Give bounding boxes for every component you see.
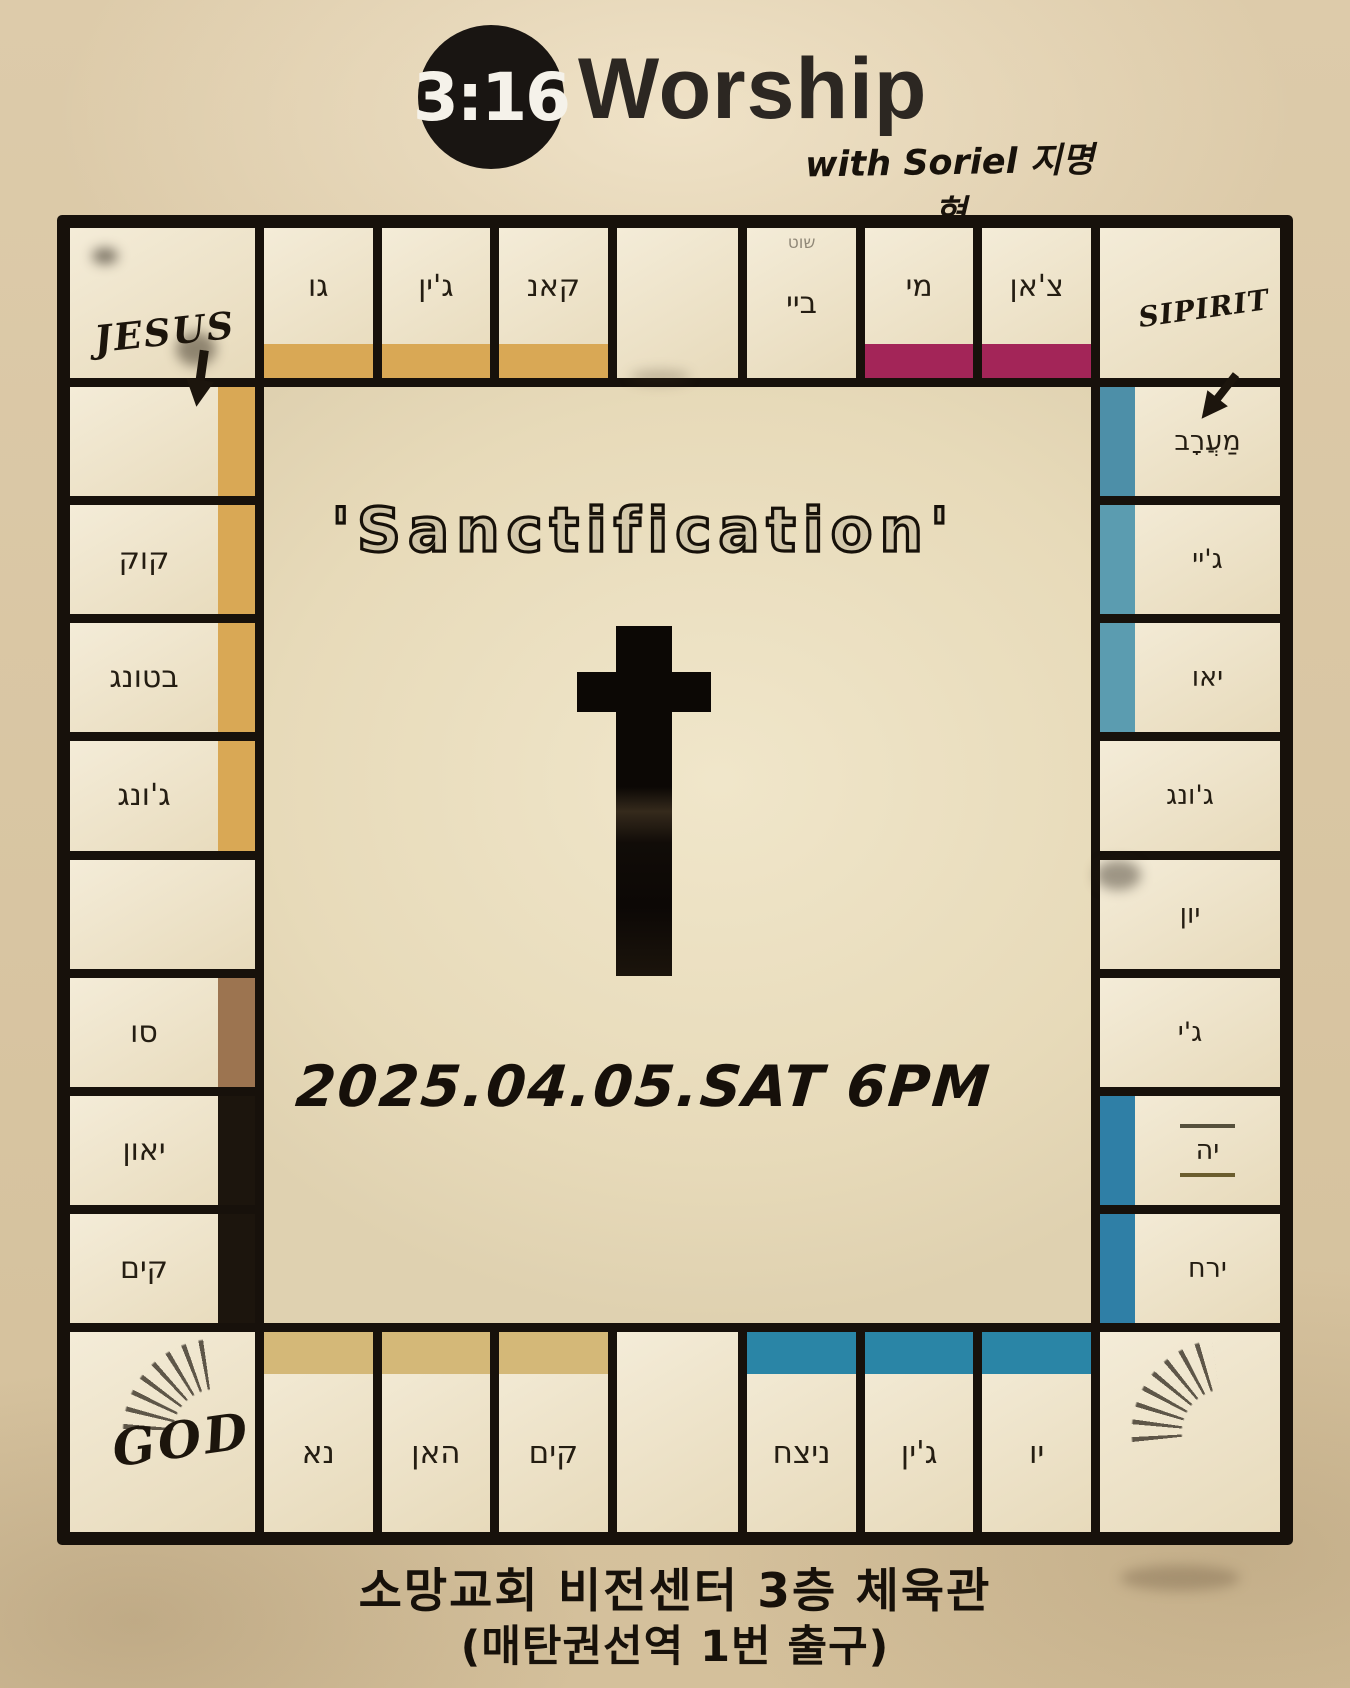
- square-label-area: [617, 1332, 739, 1532]
- square-label: יאו: [1192, 662, 1223, 693]
- color-bar: [747, 1332, 856, 1374]
- square-label: ירח: [1188, 1253, 1227, 1284]
- color-bar: [218, 1214, 255, 1323]
- board-side-bottom: נאהאןקיםניצחג'יןיו: [264, 1332, 1091, 1532]
- square-label: סו: [130, 1015, 158, 1050]
- board-side-top: גוג'יןקאנשוטביימיצ'אן: [264, 228, 1091, 378]
- center-content: 'Sanctification' 2025.04.05.SAT 6PM: [296, 387, 991, 1120]
- board-square: האן: [382, 1332, 491, 1532]
- corner-bottom-right: [1100, 1332, 1280, 1532]
- color-bar: [1100, 623, 1135, 732]
- logo-badge-text: 3:16: [413, 59, 569, 136]
- color-bar: [1100, 1214, 1135, 1323]
- board-square: גו: [264, 228, 373, 378]
- board-square: יון: [1100, 860, 1280, 969]
- color-bar: [1100, 1096, 1135, 1205]
- square-label-area: ג'ונג: [1100, 741, 1280, 850]
- color-bar: [264, 1332, 373, 1374]
- square-label: בטונג: [109, 660, 178, 695]
- color-bar: [218, 505, 255, 614]
- square-label: קאנ: [527, 269, 580, 304]
- board-square: קוק: [70, 505, 255, 614]
- down-arrow-icon: [175, 347, 225, 414]
- square-label: מי: [906, 269, 933, 304]
- directions-line: (매탄권선역 1번 출구): [0, 1612, 1350, 1674]
- corner-label: SIPIRIT: [1137, 283, 1272, 334]
- corner-sipirit: SIPIRIT: [1100, 228, 1280, 378]
- square-label: נא: [302, 1435, 335, 1471]
- square-label-area: [70, 860, 255, 969]
- board-square: ג'ין: [382, 228, 491, 378]
- color-bar: [1100, 505, 1135, 614]
- board-square: יאון: [70, 1096, 255, 1205]
- square-label-area: שוטביי: [747, 228, 856, 378]
- logo-badge: 3:16: [418, 25, 564, 169]
- board-square: ג'י: [1100, 978, 1280, 1087]
- square-label-area: קים: [499, 1374, 608, 1532]
- square-label-area: ניצח: [747, 1374, 856, 1532]
- square-label: האן: [411, 1435, 460, 1471]
- square-label: קים: [529, 1435, 579, 1471]
- board-square: יה: [1100, 1096, 1280, 1205]
- square-label-area: ג'י: [1100, 978, 1280, 1087]
- square-label: גו: [308, 269, 329, 304]
- square-label-area: יה: [1135, 1096, 1280, 1205]
- board-square: ג'ין: [865, 1332, 974, 1532]
- square-label: יה: [1180, 1124, 1236, 1177]
- corner-label: GOD: [109, 1401, 254, 1479]
- square-label: ג'י: [1178, 1017, 1203, 1048]
- square-label-area: נא: [264, 1374, 373, 1532]
- square-label: יאון: [122, 1133, 165, 1168]
- square-label: יו: [1029, 1435, 1044, 1471]
- color-bar: [218, 623, 255, 732]
- color-bar: [218, 387, 255, 496]
- board-bottom-row: GOD נאהאןקיםניצחג'יןיו: [70, 1332, 1280, 1532]
- board-square: [617, 228, 739, 378]
- square-label: קוק: [119, 542, 170, 577]
- board-square: [70, 387, 255, 496]
- corner-jesus: JESUS: [70, 228, 255, 378]
- board-square: ג'יי: [1100, 505, 1280, 614]
- board-square: ג'ונג: [70, 741, 255, 850]
- fan-decoration: [1107, 1329, 1224, 1446]
- board-square: מי: [865, 228, 974, 378]
- square-label-area: ג'ונג: [70, 741, 218, 850]
- color-bar: [1100, 387, 1135, 496]
- color-bar: [382, 344, 491, 378]
- board-square: יו: [982, 1332, 1091, 1532]
- square-label-area: סו: [70, 978, 218, 1087]
- square-label-area: מי: [865, 228, 974, 344]
- square-label-area: ג'ין: [865, 1374, 974, 1532]
- color-bar: [865, 1332, 974, 1374]
- color-bar: [982, 1332, 1091, 1374]
- square-label-area: קים: [70, 1214, 218, 1323]
- square-label: ג'יי: [1192, 544, 1223, 575]
- square-label-area: ג'יי: [1135, 505, 1280, 614]
- board-square: ניצח: [747, 1332, 856, 1532]
- square-label: יון: [1180, 899, 1201, 930]
- color-bar: [865, 344, 974, 378]
- square-label: ג'ין: [901, 1435, 938, 1471]
- board-square: קאנ: [499, 228, 608, 378]
- board-square: סו: [70, 978, 255, 1087]
- square-label-area: האן: [382, 1374, 491, 1532]
- board-square: צ'אן: [982, 228, 1091, 378]
- board-center: 'Sanctification' 2025.04.05.SAT 6PM: [264, 387, 1091, 1323]
- board-square: קים: [499, 1332, 608, 1532]
- board-square: ירח: [1100, 1214, 1280, 1323]
- square-label-area: ירח: [1135, 1214, 1280, 1323]
- square-label: ניצח: [773, 1435, 831, 1471]
- board-square: נא: [264, 1332, 373, 1532]
- square-label-area: יאון: [70, 1096, 218, 1205]
- color-bar: [264, 344, 373, 378]
- board-square: [70, 860, 255, 969]
- square-label: צ'אן: [1010, 269, 1064, 304]
- board-square: קים: [70, 1214, 255, 1323]
- square-label: ג'ונג: [1166, 780, 1214, 811]
- board-middle: קוקבטונגג'ונגסויאוןקים 'Sanctification' …: [70, 387, 1280, 1323]
- square-label: ג'ין: [418, 269, 454, 304]
- board-side-left: קוקבטונגג'ונגסויאוןקים: [70, 387, 255, 1323]
- square-label-area: בטונג: [70, 623, 218, 732]
- color-bar: [382, 1332, 491, 1374]
- game-board: JESUS גוג'יןקאנשוטביימיצ'אן SIPIRIT קוקב…: [57, 215, 1293, 1545]
- board-side-right: מַעֲרָבג'יייאוג'ונגיוןג'ייהירח: [1100, 387, 1280, 1323]
- color-bar: [499, 1332, 608, 1374]
- square-label-area: [617, 228, 739, 378]
- venue-line: 소망교회 비전센터 3층 체육관: [0, 1552, 1350, 1621]
- square-label-area: קוק: [70, 505, 218, 614]
- square-label: ג'ונג: [117, 778, 170, 813]
- square-label-area: יאו: [1135, 623, 1280, 732]
- square-label-area: קאנ: [499, 228, 608, 344]
- board-square: שוטביי: [747, 228, 856, 378]
- square-label-area: יו: [982, 1374, 1091, 1532]
- board-square: יאו: [1100, 623, 1280, 732]
- board-square: ג'ונג: [1100, 741, 1280, 850]
- color-bar: [982, 344, 1091, 378]
- logo-wordmark: Worship: [578, 40, 927, 139]
- square-label-area: ג'ין: [382, 228, 491, 344]
- square-label-area: יון: [1100, 860, 1280, 969]
- color-bar: [499, 344, 608, 378]
- event-title: 'Sanctification': [331, 495, 955, 566]
- color-bar: [218, 741, 255, 850]
- cross-icon: [577, 626, 711, 976]
- square-note: שוט: [788, 233, 816, 253]
- square-label: קים: [120, 1251, 168, 1286]
- color-bar: [218, 978, 255, 1087]
- square-label-area: גו: [264, 228, 373, 344]
- square-label-area: צ'אן: [982, 228, 1091, 344]
- board-square: [617, 1332, 739, 1532]
- color-bar: [218, 1096, 255, 1205]
- square-label: ביי: [786, 286, 817, 321]
- corner-god: GOD: [70, 1332, 255, 1532]
- event-datetime: 2025.04.05.SAT 6PM: [293, 1054, 994, 1120]
- board-square: בטונג: [70, 623, 255, 732]
- board-top-row: JESUS גוג'יןקאנשוטביימיצ'אן SIPIRIT: [70, 228, 1280, 378]
